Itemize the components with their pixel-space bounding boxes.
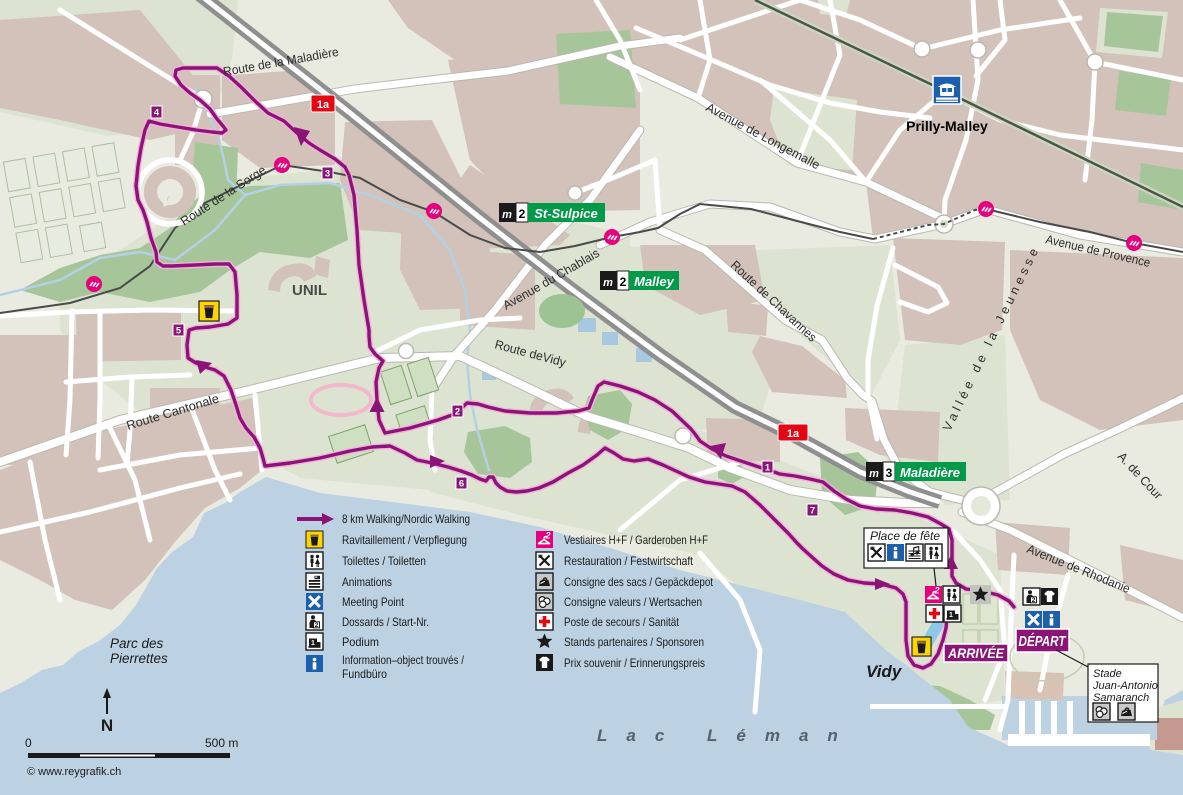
svg-text:Stands partenaires / Sponsoren: Stands partenaires / Sponsoren	[564, 635, 704, 649]
svg-text:Vidy: Vidy	[866, 662, 903, 681]
svg-text:DÉPART: DÉPART	[1019, 633, 1067, 650]
svg-text:ARRIVÉE: ARRIVÉE	[947, 645, 1004, 661]
svg-text:N: N	[101, 716, 113, 735]
svg-text:Information–object trouvés /: Information–object trouvés /	[342, 653, 465, 667]
svg-text:3: 3	[325, 169, 330, 180]
svg-text:4: 4	[154, 108, 160, 119]
svg-text:Prix souvenir / Erinnerungspre: Prix souvenir / Erinnerungspreis	[564, 656, 705, 670]
svg-text:Animations: Animations	[342, 575, 392, 589]
svg-text:5: 5	[176, 326, 182, 337]
svg-text:Ravitaillement / Verpflegung: Ravitaillement / Verpflegung	[342, 533, 467, 547]
svg-text:Vestiaires H+F / Garderoben H+: Vestiaires H+F / Garderoben H+F	[564, 533, 708, 547]
svg-text:1a: 1a	[317, 99, 330, 111]
svg-text:2: 2	[519, 207, 526, 221]
svg-text:Fundbüro: Fundbüro	[342, 667, 387, 681]
svg-text:Samaranch: Samaranch	[1093, 692, 1149, 704]
svg-text:Meeting Point: Meeting Point	[342, 595, 405, 609]
svg-text:Dossards / Start-Nr.: Dossards / Start-Nr.	[342, 615, 429, 629]
svg-text:2: 2	[620, 275, 627, 289]
svg-text:Toilettes / Toiletten: Toilettes / Toiletten	[342, 554, 426, 568]
svg-text:Podium: Podium	[342, 635, 379, 649]
svg-text:3: 3	[886, 466, 893, 480]
svg-text:m: m	[869, 468, 879, 480]
svg-text:Place de fête: Place de fête	[870, 529, 940, 543]
svg-text:Maladière: Maladière	[900, 465, 960, 480]
svg-text:Poste de secours / Sanität: Poste de secours / Sanität	[564, 615, 680, 629]
svg-text:Restauration / Festwirtschaft: Restauration / Festwirtschaft	[564, 554, 694, 568]
svg-text:Prilly-Malley: Prilly-Malley	[906, 118, 988, 134]
svg-text:© www.reygrafik.ch: © www.reygrafik.ch	[27, 766, 121, 778]
svg-text:6: 6	[459, 479, 464, 490]
svg-text:Parc des: Parc des	[110, 636, 164, 651]
svg-text:1a: 1a	[787, 428, 800, 440]
svg-text:Juan-Antonio: Juan-Antonio	[1092, 680, 1158, 692]
svg-text:1: 1	[765, 463, 771, 474]
svg-text:Stade: Stade	[1093, 668, 1122, 680]
svg-text:7: 7	[810, 506, 815, 517]
svg-text:500 m: 500 m	[205, 736, 238, 750]
svg-text:2: 2	[455, 407, 460, 418]
svg-text:8 km Walking/Nordic Walking: 8 km Walking/Nordic Walking	[342, 512, 470, 526]
svg-text:Consigne valeurs / Wertsachen: Consigne valeurs / Wertsachen	[564, 595, 702, 609]
svg-text:m: m	[502, 209, 512, 221]
svg-text:0: 0	[25, 736, 32, 750]
svg-text:St-Sulpice: St-Sulpice	[534, 206, 598, 221]
svg-text:Pierrettes: Pierrettes	[110, 651, 168, 666]
svg-text:Lac Léman: Lac Léman	[597, 726, 857, 745]
svg-text:Malley: Malley	[634, 274, 675, 289]
svg-text:Consigne des sacs / Gepäckdepo: Consigne des sacs / Gepäckdepot	[564, 575, 714, 589]
svg-text:m: m	[603, 277, 613, 289]
svg-text:UNIL: UNIL	[292, 282, 327, 299]
